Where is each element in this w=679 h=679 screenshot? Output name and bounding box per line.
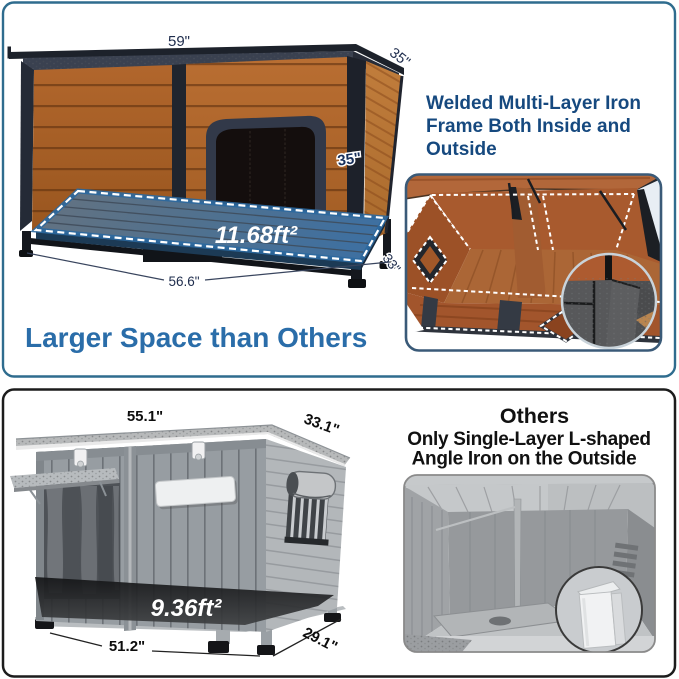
svg-text:56.6": 56.6" <box>168 274 199 289</box>
svg-text:51.2": 51.2" <box>109 638 145 655</box>
svg-text:9.36ft²: 9.36ft² <box>151 595 223 622</box>
svg-text:11.68ft²: 11.68ft² <box>215 222 298 249</box>
svg-text:59": 59" <box>168 33 190 50</box>
svg-text:Outside: Outside <box>426 139 497 160</box>
svg-text:Welded Multi-Layer Iron: Welded Multi-Layer Iron <box>426 93 641 114</box>
svg-text:Frame Both Inside and: Frame Both Inside and <box>426 116 631 137</box>
svg-text:35": 35" <box>336 149 362 169</box>
svg-text:Larger Space than Others: Larger Space than Others <box>25 322 367 353</box>
svg-text:Only Single-Layer L-shaped: Only Single-Layer L-shaped <box>407 429 650 450</box>
svg-text:Others: Others <box>500 404 569 428</box>
svg-text:Angle Iron on the Outside: Angle Iron on the Outside <box>412 449 637 470</box>
svg-text:55.1": 55.1" <box>127 408 163 425</box>
